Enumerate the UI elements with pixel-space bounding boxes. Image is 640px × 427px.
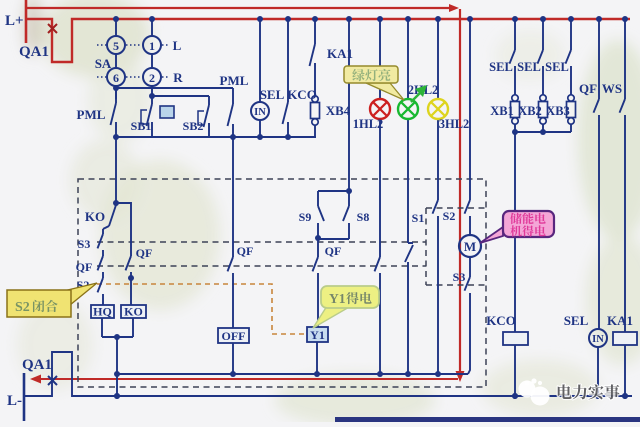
svg-text:3HL2: 3HL2 [439, 117, 470, 131]
svg-text:5: 5 [113, 39, 119, 53]
svg-text:PML: PML [220, 73, 249, 88]
svg-text:Y1: Y1 [310, 328, 325, 342]
svg-text:OFF: OFF [222, 329, 246, 343]
svg-text:SEL: SEL [564, 313, 589, 328]
svg-text:QF: QF [325, 244, 342, 258]
svg-text:R: R [173, 70, 183, 85]
svg-text:QF: QF [579, 81, 597, 96]
svg-text:KO: KO [85, 209, 105, 224]
svg-text:XB4: XB4 [326, 103, 351, 118]
svg-text:1HL2: 1HL2 [353, 117, 384, 131]
svg-text:S3: S3 [78, 237, 91, 251]
svg-text:SEL: SEL [489, 60, 513, 74]
svg-text:SA: SA [95, 56, 112, 71]
svg-text:S2: S2 [443, 209, 456, 223]
svg-text:HQ: HQ [93, 305, 112, 319]
svg-text:S2: S2 [15, 300, 30, 315]
svg-text:SEL: SEL [260, 87, 285, 102]
svg-text:S3: S3 [453, 270, 466, 284]
svg-text:2: 2 [149, 71, 155, 85]
svg-text:XB1: XB1 [490, 104, 514, 118]
svg-text:L+: L+ [5, 13, 24, 29]
svg-text:XB2: XB2 [518, 104, 542, 118]
svg-text:SB2: SB2 [183, 119, 204, 133]
svg-text:XB3: XB3 [546, 104, 570, 118]
svg-text:SEL: SEL [517, 60, 541, 74]
svg-text:KA1: KA1 [607, 313, 633, 328]
svg-text:KO: KO [124, 305, 143, 319]
svg-text:QF: QF [237, 244, 254, 258]
svg-text:6: 6 [113, 71, 119, 85]
svg-text:SB1: SB1 [131, 119, 152, 133]
svg-text:QA1: QA1 [22, 357, 52, 373]
svg-text:WS: WS [602, 81, 622, 96]
svg-text:IN: IN [592, 334, 604, 345]
svg-text:PML: PML [77, 107, 106, 122]
svg-text:SEL: SEL [545, 60, 569, 74]
svg-text:S1: S1 [412, 211, 425, 225]
svg-text:L-: L- [7, 393, 22, 409]
svg-text:KCO: KCO [486, 313, 516, 328]
svg-text:M: M [464, 239, 476, 254]
svg-text:QF: QF [136, 246, 153, 260]
svg-text:S9: S9 [299, 210, 312, 224]
svg-text:IN: IN [254, 107, 266, 118]
svg-text:1: 1 [149, 39, 155, 53]
svg-text:QF: QF [76, 260, 93, 274]
svg-text:L: L [173, 38, 182, 53]
svg-text:S8: S8 [357, 210, 370, 224]
svg-text:QA1: QA1 [19, 44, 49, 60]
svg-text:Y1: Y1 [329, 291, 346, 306]
